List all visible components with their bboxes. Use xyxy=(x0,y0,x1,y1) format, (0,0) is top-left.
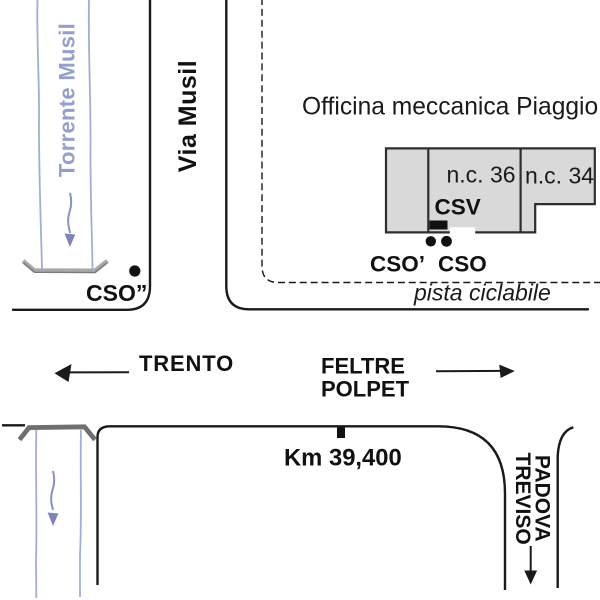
svg-text:pista ciclabile: pista ciclabile xyxy=(413,280,551,306)
svg-text:POLPET: POLPET xyxy=(321,377,410,402)
svg-text:CSV: CSV xyxy=(435,195,481,220)
svg-text:FELTRE: FELTRE xyxy=(321,354,405,379)
svg-text:CSO”: CSO” xyxy=(86,280,147,306)
svg-text:n.c. 34: n.c. 34 xyxy=(525,163,594,189)
svg-text:Officina meccanica Piaggio: Officina meccanica Piaggio xyxy=(302,94,598,121)
svg-text:CSO’: CSO’ xyxy=(370,252,425,277)
svg-text:TRENTO: TRENTO xyxy=(139,351,234,376)
svg-text:CSO: CSO xyxy=(438,252,487,277)
svg-text:TREVISO: TREVISO xyxy=(511,453,534,545)
svg-text:Via Musil: Via Musil xyxy=(174,60,202,172)
svg-text:Km 39,400: Km 39,400 xyxy=(284,445,402,472)
svg-text:n.c. 36: n.c. 36 xyxy=(447,162,516,188)
svg-text:Torrente Musil: Torrente Musil xyxy=(55,23,80,177)
